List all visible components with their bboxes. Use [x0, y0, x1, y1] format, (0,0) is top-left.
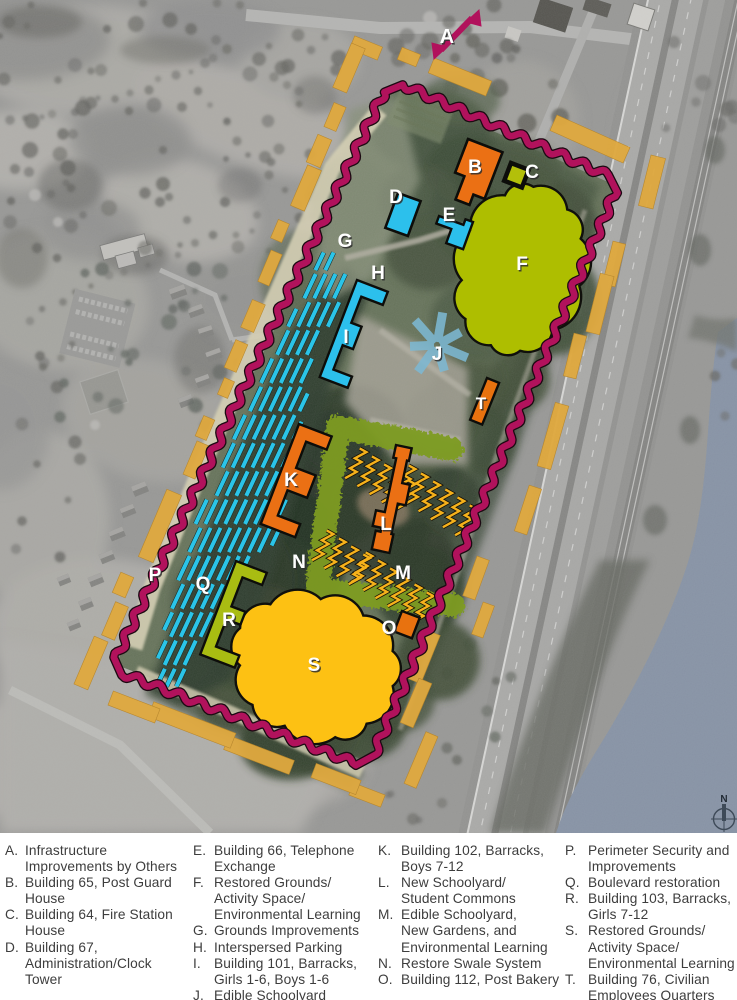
- svg-text:R: R: [222, 610, 236, 631]
- svg-text:S: S: [308, 655, 321, 676]
- svg-text:L: L: [380, 514, 392, 535]
- svg-text:N: N: [720, 794, 727, 805]
- svg-text:T: T: [476, 394, 487, 413]
- svg-text:O: O: [382, 618, 397, 639]
- svg-text:M: M: [395, 563, 411, 584]
- svg-text:E: E: [443, 205, 456, 226]
- svg-text:D: D: [389, 187, 403, 208]
- svg-text:J: J: [432, 344, 443, 365]
- svg-text:I: I: [343, 327, 348, 348]
- svg-text:H: H: [371, 263, 385, 284]
- svg-text:C: C: [525, 162, 539, 183]
- svg-text:F: F: [516, 254, 528, 275]
- svg-text:Q: Q: [196, 574, 211, 595]
- svg-text:A: A: [440, 26, 454, 48]
- svg-text:P: P: [149, 565, 162, 586]
- svg-text:N: N: [292, 552, 306, 573]
- svg-text:K: K: [284, 470, 298, 491]
- svg-text:B: B: [468, 157, 482, 178]
- svg-text:G: G: [338, 231, 353, 252]
